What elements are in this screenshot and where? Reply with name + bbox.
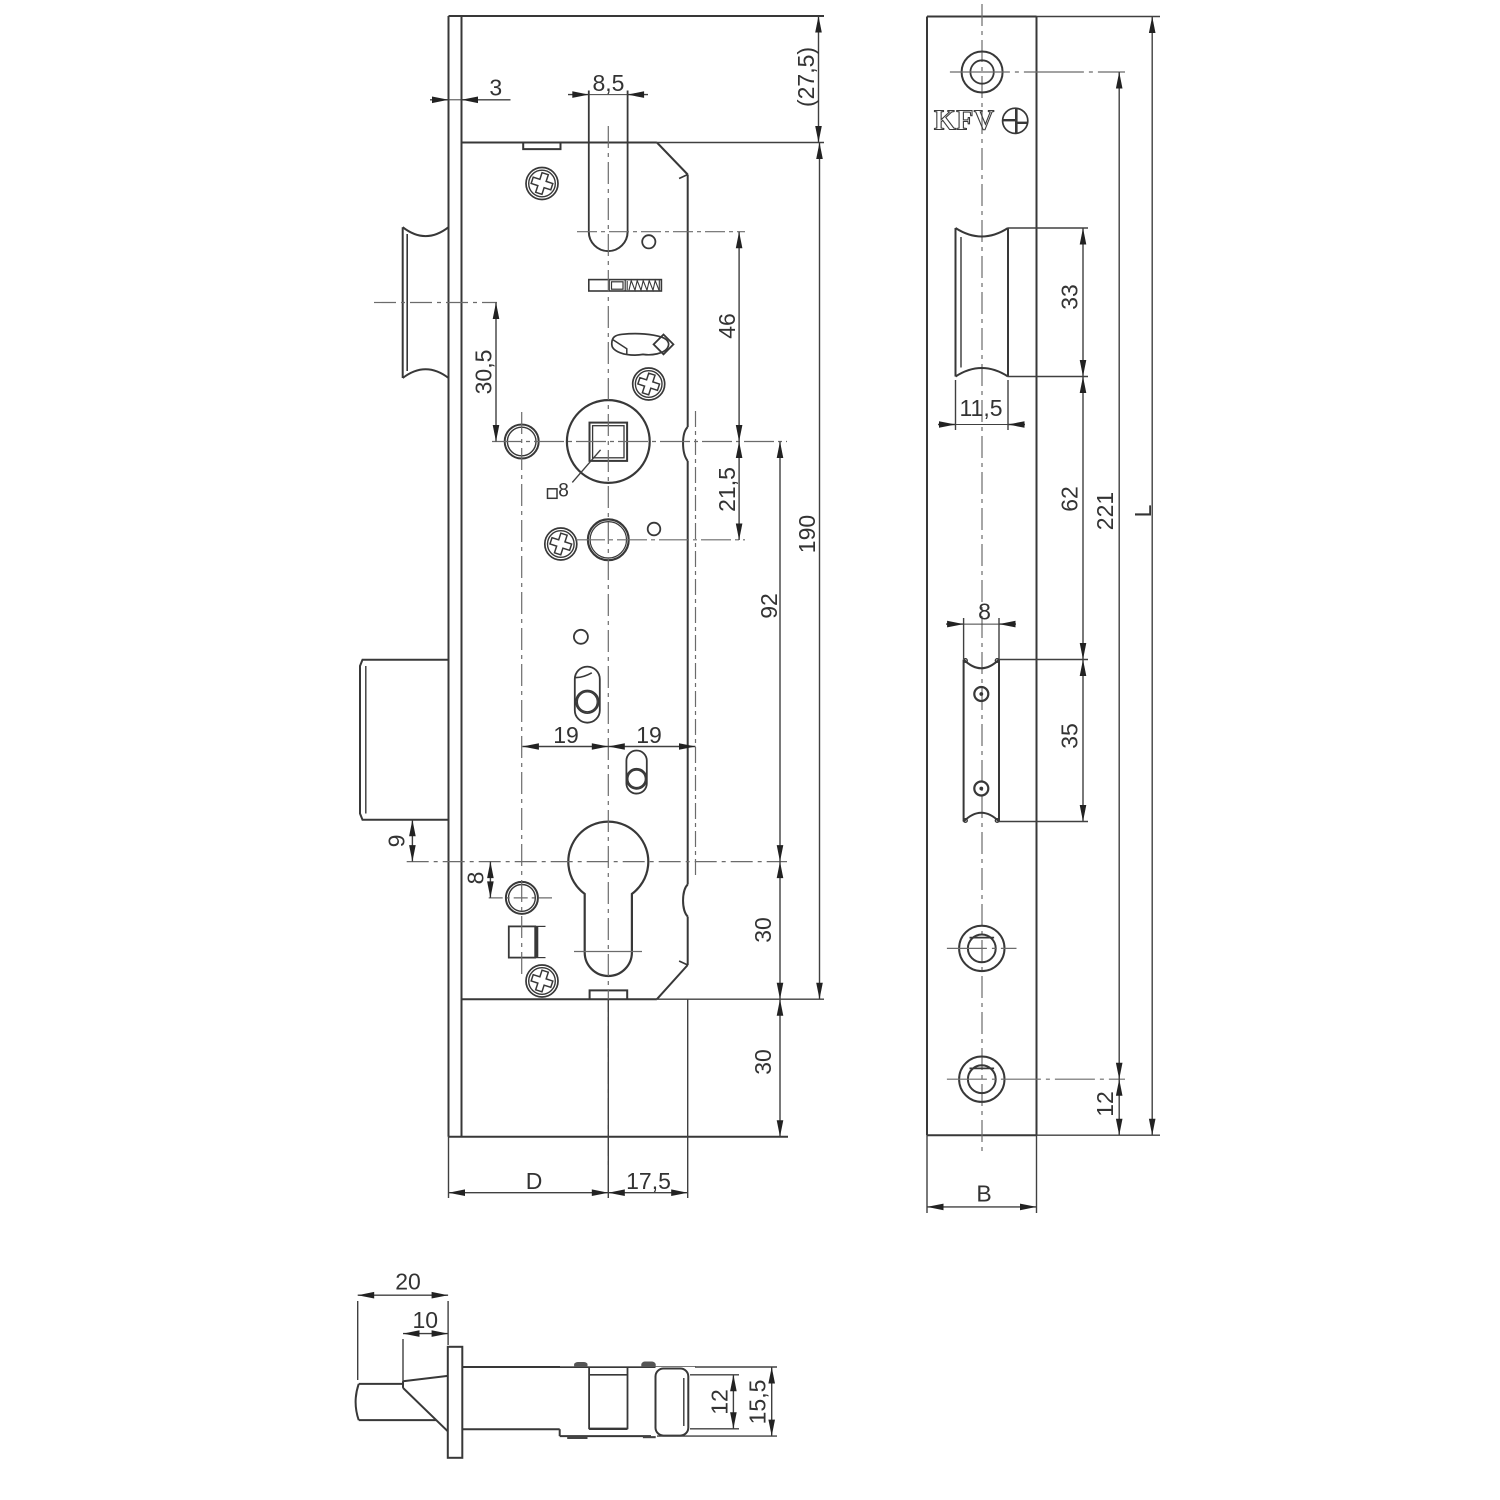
svg-text:8: 8	[463, 872, 489, 885]
svg-text:(27,5): (27,5)	[793, 47, 819, 107]
svg-text:L: L	[1130, 504, 1156, 517]
svg-text:33: 33	[1057, 284, 1083, 310]
svg-text:19: 19	[553, 722, 579, 748]
svg-text:8,5: 8,5	[593, 70, 625, 96]
svg-text:KFV: KFV	[934, 106, 995, 137]
svg-text:8: 8	[978, 599, 991, 625]
svg-text:21,5: 21,5	[714, 467, 740, 512]
svg-text:17,5: 17,5	[626, 1168, 671, 1194]
svg-text:20: 20	[395, 1268, 421, 1294]
svg-text:30,5: 30,5	[471, 350, 497, 395]
svg-text:10: 10	[413, 1307, 439, 1333]
svg-text:12: 12	[707, 1389, 733, 1415]
svg-text:19: 19	[636, 722, 662, 748]
svg-text:12: 12	[1092, 1091, 1118, 1117]
svg-text:3: 3	[489, 74, 502, 100]
svg-text:B: B	[976, 1181, 991, 1207]
svg-text:11,5: 11,5	[959, 395, 1002, 421]
svg-text:9: 9	[384, 835, 410, 848]
svg-text:92: 92	[756, 593, 782, 619]
svg-text:46: 46	[714, 313, 740, 339]
svg-text:221: 221	[1092, 492, 1118, 530]
svg-text:30: 30	[750, 917, 776, 943]
svg-text:35: 35	[1057, 723, 1083, 749]
svg-text:190: 190	[794, 515, 820, 553]
svg-text:15,5: 15,5	[745, 1380, 771, 1425]
svg-text:62: 62	[1057, 486, 1083, 512]
svg-text:D: D	[526, 1168, 543, 1194]
svg-text:30: 30	[750, 1049, 776, 1075]
svg-text:8: 8	[558, 480, 569, 501]
